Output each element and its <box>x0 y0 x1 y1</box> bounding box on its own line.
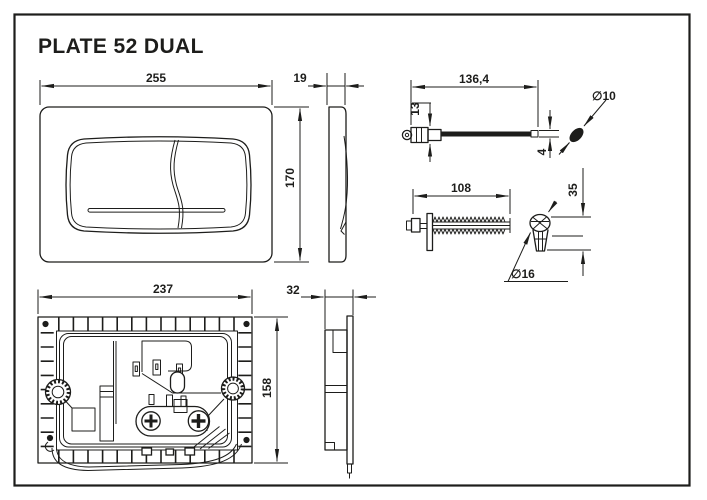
anchor-height-dimension: 35 <box>547 168 591 276</box>
plate-outline <box>40 107 272 262</box>
screw-length-dimension: 108 <box>413 181 510 214</box>
mechanism-tab <box>181 396 186 407</box>
dial-wedge <box>207 399 224 431</box>
frame-foot-tab <box>142 448 152 455</box>
frame-top-boss <box>333 330 347 353</box>
frame-width-dimension: 237 <box>38 282 252 314</box>
dimension-label: ∅10 <box>592 89 616 103</box>
thread-teeth-top <box>433 217 505 222</box>
leader-line <box>549 202 557 213</box>
mechanism-block <box>100 386 114 441</box>
dimension-label: 19 <box>293 71 307 85</box>
page-title: PLATE 52 DUAL <box>38 35 204 58</box>
dimension-label: 108 <box>451 181 471 195</box>
button-bezel-outer <box>66 137 251 234</box>
button-bezel-inner <box>70 141 247 229</box>
frame-foot <box>325 443 335 451</box>
dimension-label: 136,4 <box>459 72 489 86</box>
screw-flange <box>427 214 433 251</box>
rod-knob-view: ∅10 <box>559 89 616 155</box>
corner-screw <box>42 321 48 327</box>
anchor-body <box>533 230 548 251</box>
screw-end-detail <box>407 221 412 230</box>
mechanism-tab <box>149 395 154 405</box>
frame-side-view <box>325 316 353 479</box>
dial-wedge <box>66 401 73 408</box>
frame-profile <box>325 330 347 450</box>
dimension-label: 255 <box>146 71 166 85</box>
dimension-label: 237 <box>153 282 173 296</box>
corner-screw <box>243 321 249 327</box>
mechanism-bracket <box>142 341 192 372</box>
rod-tip <box>531 131 538 138</box>
thread-teeth-bottom <box>433 229 505 234</box>
button-slot <box>88 209 225 213</box>
frame-depth-dimension: 32 <box>286 283 376 329</box>
dimension-label: 13 <box>408 102 422 116</box>
drawing-canvas: PLATE 52 DUAL 255 19 170 <box>0 0 707 500</box>
dimension-label: 158 <box>260 378 274 398</box>
anchor-diameter-dimension: ∅16 <box>504 233 568 282</box>
frame-foot-tab <box>166 449 174 455</box>
dimension-label: 32 <box>286 283 300 297</box>
actuation-rod-view <box>402 128 538 143</box>
latch-slot <box>153 360 161 375</box>
plate-side-view <box>329 107 348 262</box>
dimension-label: 4 <box>535 148 549 155</box>
rod-shaft <box>441 132 531 137</box>
corner-screw <box>47 435 53 441</box>
frame-bottom-pin <box>348 464 352 473</box>
side-profile <box>329 107 346 262</box>
corner-screw <box>243 437 249 443</box>
mechanism-pill <box>171 372 185 393</box>
frame-foot-tab <box>185 448 195 455</box>
latch-slot-pin <box>156 364 158 370</box>
dial-mount-block <box>72 408 95 431</box>
latch-slot-pin <box>135 366 137 372</box>
leader-line <box>559 143 570 155</box>
frame-height-dimension: 158 <box>254 317 288 463</box>
front-height-dimension: 170 <box>274 107 309 262</box>
leader-line <box>584 100 606 126</box>
fixing-screw-view <box>407 214 511 251</box>
latch-slot <box>133 362 140 376</box>
technical-drawing-page: PLATE 52 DUAL 255 19 170 <box>0 0 707 500</box>
front-view <box>40 107 272 262</box>
dimension-label: 35 <box>566 183 580 197</box>
plate-profile <box>347 316 353 464</box>
button-divider-right <box>174 140 183 228</box>
rod-head-block <box>411 128 428 143</box>
screw-head <box>412 219 421 233</box>
knob-body <box>567 125 586 144</box>
frame-back-view <box>38 317 252 471</box>
plate-thickness-dimension: 19 <box>293 71 364 105</box>
rod-ball-detail <box>405 133 408 136</box>
rod-tip-dimension: 4 <box>535 110 559 158</box>
mechanism-detail-line <box>142 374 173 394</box>
rod-neck <box>428 130 441 141</box>
rod-ball-end <box>402 130 411 139</box>
dimension-label: 170 <box>283 168 297 188</box>
dimension-label: ∅16 <box>511 267 535 281</box>
anchor-cone-view <box>530 202 556 252</box>
front-width-dimension: 255 <box>40 71 272 105</box>
